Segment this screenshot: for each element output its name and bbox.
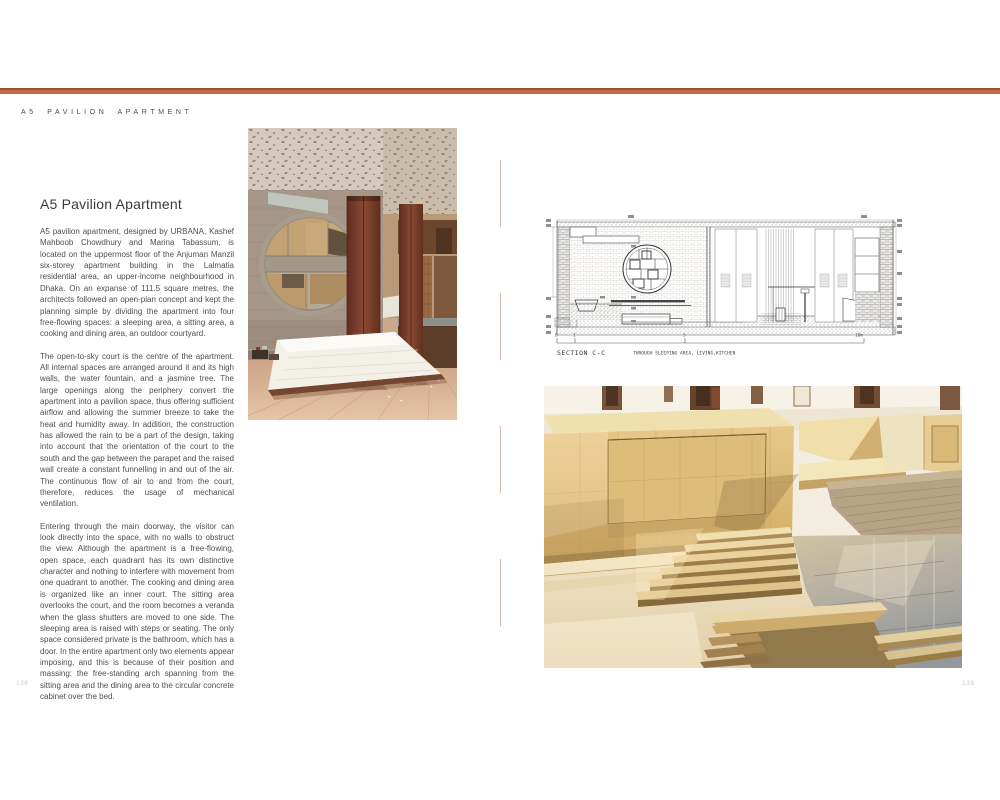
page-number-left: 138 xyxy=(16,680,28,687)
article-title: A5 Pavilion Apartment xyxy=(40,196,234,212)
courtyard-photo-illustration xyxy=(544,386,962,668)
article-paragraph: A5 pavilion apartment, designed by URBAN… xyxy=(40,226,234,340)
scale-label-1: 1 xyxy=(573,333,576,339)
column-divider xyxy=(500,160,501,673)
article-column: A5 Pavilion Apartment A5 pavilion apartm… xyxy=(40,196,234,713)
section-drawing: 0 1 5 10m SECTION C-C THROUGH SLEEPING A… xyxy=(543,212,903,362)
drawing-caption-subtitle: THROUGH SLEEPING AREA, LIVING,KITCHEN xyxy=(633,351,736,357)
scale-label-5: 5 xyxy=(683,333,686,339)
article-paragraph: Entering through the main doorway, the v… xyxy=(40,521,234,703)
book-spread: A5 PAVILION APARTMENT A5 Pavilion Apartm… xyxy=(0,0,1000,800)
section-drawing-svg: 0 1 5 10m SECTION C-C THROUGH SLEEPING A… xyxy=(543,212,903,362)
interior-photo-illustration xyxy=(248,128,457,420)
scale-label-0: 0 xyxy=(555,333,558,339)
courtyard-photo xyxy=(544,386,962,668)
page-number-right: 139 xyxy=(962,680,974,687)
accent-rule xyxy=(0,88,1000,94)
interior-photo xyxy=(248,128,457,420)
scale-label-10m: 10m xyxy=(855,333,863,339)
running-header: A5 PAVILION APARTMENT xyxy=(21,109,192,116)
drawing-caption-title: SECTION C-C xyxy=(557,349,606,357)
article-paragraph: The open-to-sky court is the centre of t… xyxy=(40,351,234,510)
